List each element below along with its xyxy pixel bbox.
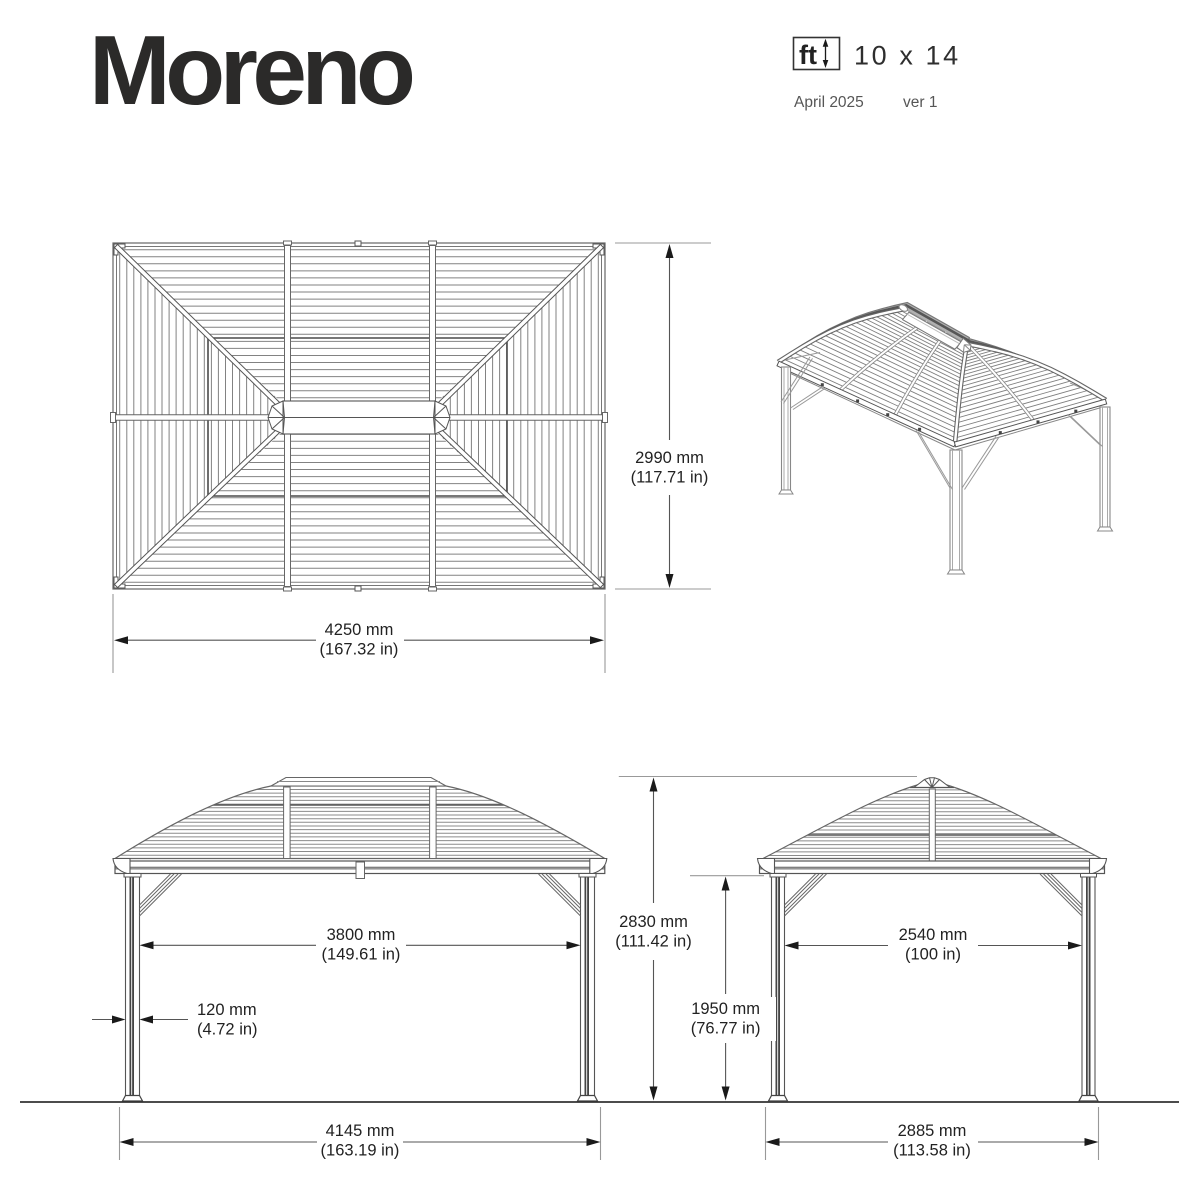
svg-text:Moreno: Moreno [89, 15, 413, 125]
svg-text:(113.58 in): (113.58 in) [893, 1142, 971, 1160]
svg-text:1950 mm: 1950 mm [691, 1000, 760, 1018]
svg-text:4250 mm: 4250 mm [325, 621, 394, 639]
svg-text:4145 mm: 4145 mm [326, 1122, 395, 1140]
svg-text:10 x 14: 10 x 14 [854, 41, 961, 71]
svg-text:2540 mm: 2540 mm [899, 926, 968, 944]
svg-text:3800 mm: 3800 mm [327, 926, 396, 944]
svg-text:2990 mm: 2990 mm [635, 449, 704, 467]
svg-text:(167.32 in): (167.32 in) [320, 641, 399, 659]
svg-text:2830 mm: 2830 mm [619, 913, 688, 931]
svg-text:April 2025: April 2025 [794, 94, 864, 111]
svg-text:(117.71 in): (117.71 in) [631, 469, 709, 487]
svg-text:(76.77 in): (76.77 in) [691, 1020, 761, 1038]
svg-text:(111.42 in): (111.42 in) [615, 933, 691, 951]
svg-text:(100 in): (100 in) [905, 946, 961, 964]
svg-text:2885 mm: 2885 mm [898, 1122, 967, 1140]
svg-text:(163.19 in): (163.19 in) [321, 1142, 400, 1160]
svg-text:120 mm: 120 mm [197, 1001, 257, 1019]
svg-text:ver 1: ver 1 [903, 94, 937, 111]
svg-text:ft: ft [799, 40, 817, 70]
svg-text:(149.61 in): (149.61 in) [322, 946, 401, 964]
svg-text:(4.72 in): (4.72 in) [197, 1021, 258, 1039]
